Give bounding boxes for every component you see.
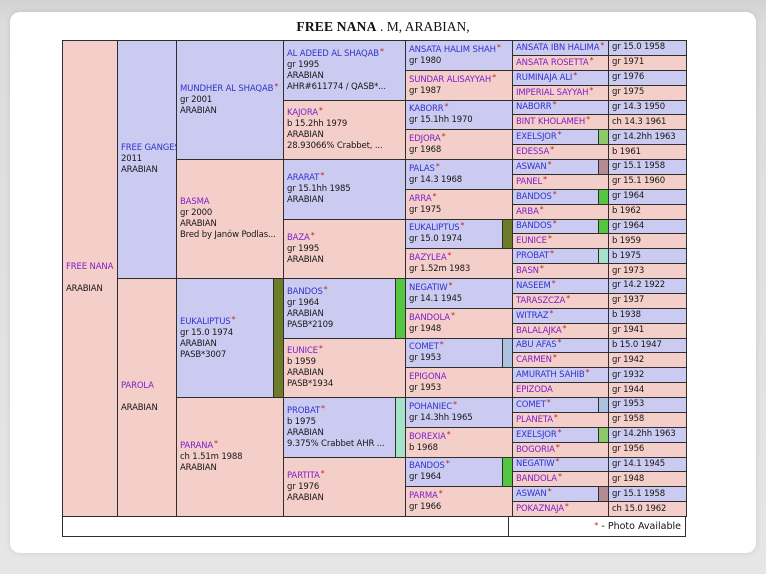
horse-detail: gr 1.52m 1983: [409, 264, 510, 275]
pedigree-table: FREE NANAARABIANFREE GANGES2011ARABIANPA…: [62, 40, 687, 537]
pedigree-cell-bandola[interactable]: BANDOLA*: [512, 471, 608, 486]
duplicate-ancestor-marker: [598, 130, 608, 144]
horse-name-line: BANDOS*: [287, 286, 403, 298]
horse-detail: gr 1964: [409, 472, 510, 483]
photo-star-icon: *: [453, 400, 457, 409]
pedigree-date-cell: b 1959: [608, 233, 686, 248]
horse-name: AL ADEED AL SHAQAB: [287, 49, 379, 59]
horse-detail: ARABIAN: [180, 463, 281, 474]
pedigree-cell-exelsjor[interactable]: EXELSJOR*: [512, 427, 608, 442]
pedigree-cell-carmen[interactable]: CARMEN*: [512, 352, 608, 367]
horse-name-line: ABU AFAS*: [516, 339, 606, 351]
horse-detail: gr 14.3 1968: [409, 175, 510, 186]
horse-name-line: EPIZODA: [516, 385, 606, 396]
horse-name-line: PARMA*: [409, 490, 510, 502]
horse-detail: b 1975: [287, 417, 403, 428]
duplicate-ancestor-marker: [598, 190, 608, 204]
horse-name-line: IMPERIAL SAYYAH*: [516, 87, 606, 99]
horse-detail: [66, 273, 115, 284]
photo-star-icon: *: [492, 73, 496, 82]
photo-star-icon: *: [558, 338, 562, 347]
photo-star-icon: *: [448, 251, 452, 260]
horse-name: ASWAN: [516, 162, 547, 172]
pedigree-cell-imperial-sayyah[interactable]: IMPERIAL SAYYAH*: [512, 85, 608, 100]
pedigree-cell-sundar-alisayyah[interactable]: SUNDAR ALISAYYAH*gr 1987: [405, 70, 512, 100]
horse-detail: PASB*2109: [287, 320, 403, 331]
horse-name-line: ASWAN*: [516, 161, 606, 173]
horse-date: gr 1971: [612, 57, 684, 68]
pedigree-cell-ruminaja-ali[interactable]: RUMINAJA ALI*: [512, 70, 608, 85]
horse-name-line: BALALAJKA*: [516, 325, 606, 337]
horse-date: b 1975: [612, 251, 684, 262]
photo-star-icon: *: [319, 344, 323, 353]
pedigree-cell-ararat[interactable]: ARARAT*gr 15.1hh 1985ARABIAN: [283, 159, 405, 219]
pedigree-date-cell: gr 1976: [608, 70, 686, 85]
horse-name-line: ARBA*: [516, 206, 606, 218]
horse-date: gr 1975: [612, 87, 684, 98]
pedigree-cell-amurath-sahib[interactable]: AMURATH SAHIB*: [512, 367, 608, 382]
pedigree-cell-basma[interactable]: BASMAgr 2000ARABIANBred by Janów Podlas.…: [176, 159, 283, 278]
horse-date: gr 15.1 1958: [612, 489, 684, 500]
horse-name-line: ASWAN*: [516, 488, 606, 500]
horse-name-line: BOGORIA*: [516, 444, 606, 456]
horse-date: gr 1953: [612, 399, 684, 410]
horse-detail: ARABIAN: [66, 284, 115, 295]
horse-name: BASN: [516, 266, 539, 276]
pedigree-date-cell: gr 14.2 1922: [608, 278, 686, 293]
pedigree-cell-parola[interactable]: PAROLAARABIAN: [117, 278, 176, 516]
photo-star-icon: *: [449, 281, 453, 290]
horse-name-line: ARARAT*: [287, 172, 403, 184]
pedigree-footer: * - Photo Available: [62, 517, 686, 537]
pedigree-cell-mundher-al-shaqab[interactable]: MUNDHER AL SHAQAB*gr 2001ARABIAN: [176, 40, 283, 159]
pedigree-cell-taraszcza[interactable]: TARASZCZA*: [512, 293, 608, 308]
horse-detail: gr 2000: [180, 208, 281, 219]
horse-date: gr 1973: [612, 266, 684, 277]
pedigree-cell-comet[interactable]: COMET*gr 1953: [405, 338, 512, 368]
horse-detail: Bred by Janów Podlas...: [180, 230, 281, 241]
horse-date: b 1962: [612, 206, 684, 217]
horse-detail: ARABIAN: [180, 106, 281, 117]
horse-name: KABORR: [409, 104, 444, 114]
horse-name-line: BAZA*: [287, 232, 403, 244]
horse-name-line: EXELSJOR*: [516, 429, 606, 441]
pedigree-grid: FREE NANAARABIANFREE GANGES2011ARABIANPA…: [62, 40, 687, 517]
horse-name-line: AMURATH SAHIB*: [516, 369, 606, 381]
photo-star-icon: *: [436, 162, 440, 171]
horse-detail: ARABIAN: [287, 309, 403, 320]
horse-name-line: BAZYLEA*: [409, 252, 510, 264]
photo-star-icon: *: [563, 324, 567, 333]
horse-name-line: EXELSJOR*: [516, 131, 606, 143]
horse-name: EPIZODA: [516, 385, 553, 395]
horse-date: b 1938: [612, 310, 684, 321]
pedigree-cell-probat[interactable]: PROBAT*b 1975ARABIAN9.375% Crabbet AHR .…: [283, 397, 405, 457]
horse-detail: ARABIAN: [287, 195, 403, 206]
horse-name-line: TARASZCZA*: [516, 295, 606, 307]
horse-name: ANSATA ROSETTA: [516, 58, 589, 68]
horse-name: PAROLA: [121, 381, 154, 391]
photo-star-icon: *: [553, 353, 557, 362]
duplicate-ancestor-marker: [598, 220, 608, 234]
horse-name: PANEL: [516, 177, 542, 187]
horse-detail: ARABIAN: [287, 368, 403, 379]
horse-date: gr 14.2hh 1963: [612, 132, 684, 143]
photo-star-icon: *: [311, 231, 315, 240]
horse-name: COMET: [516, 400, 546, 410]
photo-star-icon: *: [547, 398, 551, 407]
horse-date: b 1961: [612, 147, 684, 158]
pedigree-date-cell: gr 15.1 1960: [608, 174, 686, 189]
horse-name: BANDOS: [516, 192, 552, 202]
horse-name-line: ANSATA IBN HALIMA*: [516, 42, 606, 54]
pedigree-cell-bandos[interactable]: BANDOS*: [512, 219, 608, 234]
pedigree-cell-bandos[interactable]: BANDOS*gr 1964ARABIANPASB*2109: [283, 278, 405, 338]
photo-star-icon: *: [543, 175, 547, 184]
pedigree-date-cell: gr 14.2hh 1963: [608, 129, 686, 144]
horse-detail: gr 1966: [409, 502, 510, 513]
photo-star-icon: *: [558, 472, 562, 481]
pedigree-cell-bazylea[interactable]: BAZYLEA*gr 1.52m 1983: [405, 248, 512, 278]
horse-detail: b 1968: [409, 443, 510, 454]
horse-name: FREE GANGES: [121, 143, 176, 153]
horse-name-line: FREE NANA: [66, 262, 115, 273]
horse-detail: gr 15.0 1974: [409, 234, 510, 245]
pedigree-date-cell: b 1975: [608, 248, 686, 263]
photo-star-icon: *: [442, 132, 446, 141]
horse-date: b 1959: [612, 236, 684, 247]
horse-detail: ARABIAN: [121, 165, 174, 176]
horse-name-line: EUKALIPTUS*: [409, 222, 510, 234]
photo-star-icon: *: [553, 219, 557, 228]
horse-date: gr 1944: [612, 385, 684, 396]
horse-name: EUKALIPTUS: [180, 317, 231, 327]
photo-star-icon: *: [232, 315, 236, 324]
duplicate-ancestor-marker: [502, 458, 512, 487]
horse-name: ARRA: [409, 194, 432, 204]
pedigree-cell-bandola[interactable]: BANDOLA*gr 1948: [405, 308, 512, 338]
horse-name: ANSATA HALIM SHAH: [409, 45, 496, 55]
horse-name-line: RUMINAJA ALI*: [516, 72, 606, 84]
pedigree-cell-negatiw[interactable]: NEGATIW*gr 14.1 1945: [405, 278, 512, 308]
photo-star-icon: *: [321, 469, 325, 478]
horse-name: PLANETA: [516, 415, 553, 425]
horse-name: POHANIEC: [409, 402, 452, 412]
photo-star-icon: *: [439, 489, 443, 498]
horse-name: AMURATH SAHIB: [516, 370, 585, 380]
pedigree-cell-baza[interactable]: BAZA*gr 1995ARABIAN: [283, 219, 405, 279]
horse-name: BANDOS: [516, 221, 552, 231]
photo-star-icon: *: [550, 145, 554, 154]
pedigree-cell-eunice[interactable]: EUNICE*: [512, 233, 608, 248]
horse-date: gr 1937: [612, 295, 684, 306]
pedigree-cell-naseem[interactable]: NASEEM*: [512, 278, 608, 293]
pedigree-cell-probat[interactable]: PROBAT*: [512, 248, 608, 263]
horse-date: gr 1976: [612, 72, 684, 83]
horse-name-line: POHANIEC*: [409, 401, 510, 413]
pedigree-date-cell: gr 1971: [608, 55, 686, 70]
horse-name: NABORR: [516, 102, 551, 112]
pedigree-cell-kajora[interactable]: KAJORA*b 15.2hh 1979ARABIAN28.93066% Cra…: [283, 100, 405, 160]
pedigree-cell-borexia[interactable]: BOREXIA*b 1968: [405, 427, 512, 457]
pedigree-cell-free-nana[interactable]: FREE NANAARABIAN: [62, 40, 117, 516]
horse-detail: ARABIAN: [180, 219, 281, 230]
pedigree-cell-bint-kholameh[interactable]: BINT KHOLAMEH*: [512, 114, 608, 129]
horse-name-line: NEGATIW*: [516, 458, 606, 470]
horse-detail: gr 14.1 1945: [409, 294, 510, 305]
horse-name-line: BANDOLA*: [409, 312, 510, 324]
horse-date: ch 15.0 1962: [612, 504, 684, 515]
horse-date: gr 14.3 1950: [612, 102, 684, 113]
horse-detail: b 1959: [287, 357, 403, 368]
horse-name: PARTITA: [287, 471, 320, 481]
horse-name: ABU AFAS: [516, 340, 557, 350]
horse-detail: gr 1995: [287, 244, 403, 255]
horse-date: gr 14.1 1945: [612, 459, 684, 470]
horse-date: gr 15.1 1960: [612, 176, 684, 187]
horse-name-line: KABORR*: [409, 103, 510, 115]
horse-name-line: BASN*: [516, 265, 606, 277]
pedigree-date-cell: gr 1956: [608, 442, 686, 457]
horse-name-line: BANDOS*: [516, 220, 606, 232]
pedigree-cell-edjora[interactable]: EDJORA*gr 1968: [405, 129, 512, 159]
horse-detail: ARABIAN: [287, 493, 403, 504]
horse-name-line: COMET*: [516, 399, 606, 411]
horse-name-line: PARTITA*: [287, 470, 403, 482]
horse-date: gr 1956: [612, 444, 684, 455]
pedigree-cell-edessa[interactable]: EDESSA*: [512, 144, 608, 159]
horse-name: BANDOLA: [409, 313, 450, 323]
horse-detail: gr 15.0 1974: [180, 328, 281, 339]
horse-date: gr 15.0 1958: [612, 42, 684, 53]
pedigree-cell-planeta[interactable]: PLANETA*: [512, 412, 608, 427]
pedigree-cell-pohaniec[interactable]: POHANIEC*gr 14.3hh 1965: [405, 397, 512, 427]
footer-empty-cell: [63, 517, 509, 536]
horse-name: MUNDHER AL SHAQAB: [180, 84, 273, 94]
photo-star-icon: *: [565, 502, 569, 511]
horse-name: SUNDAR ALISAYYAH: [409, 75, 491, 85]
photo-star-icon: *: [552, 100, 556, 109]
photo-star-icon: *: [540, 205, 544, 214]
horse-name: BANDOS: [409, 461, 445, 471]
horse-name-line: ANSATA ROSETTA*: [516, 57, 606, 69]
horse-name: EUNICE: [287, 346, 318, 356]
pedigree-cell-exelsjor[interactable]: EXELSJOR*: [512, 129, 608, 144]
horse-date: gr 1942: [612, 355, 684, 366]
subject-horse-suffix: . M, ARABIAN,: [377, 19, 470, 34]
photo-star-icon: *: [380, 47, 384, 56]
pedigree-cell-epigona[interactable]: EPIGONAgr 1953: [405, 367, 512, 397]
pedigree-cell-eukaliptus[interactable]: EUKALIPTUS*gr 15.0 1974ARABIANPASB*3007: [176, 278, 283, 397]
horse-name: NEGATIW: [516, 459, 555, 469]
horse-detail: ARABIAN: [180, 339, 281, 350]
pedigree-date-cell: gr 1942: [608, 352, 686, 367]
horse-name: ARBA: [516, 207, 539, 217]
pedigree-date-cell: gr 1932: [608, 367, 686, 382]
pedigree-cell-negatiw[interactable]: NEGATIW*: [512, 457, 608, 472]
pedigree-cell-aswan[interactable]: ASWAN*: [512, 159, 608, 174]
horse-detail: gr 1976: [287, 482, 403, 493]
pedigree-date-cell: gr 1958: [608, 412, 686, 427]
pedigree-cell-witraz[interactable]: WITRAZ*: [512, 308, 608, 323]
photo-star-icon: *: [540, 264, 544, 273]
photo-available-label: - Photo Available: [601, 521, 681, 532]
pedigree-cell-naborr[interactable]: NABORR*: [512, 100, 608, 115]
pedigree-cell-bogoria[interactable]: BOGORIA*: [512, 442, 608, 457]
horse-name-line: ANSATA HALIM SHAH*: [409, 44, 510, 56]
pedigree-cell-pokaznaja[interactable]: POKAZNAJA*: [512, 501, 608, 516]
pedigree-cell-panel[interactable]: PANEL*: [512, 174, 608, 189]
horse-date: b 15.0 1947: [612, 340, 684, 351]
horse-name: EDJORA: [409, 134, 441, 144]
pedigree-cell-kaborr[interactable]: KABORR*gr 15.1hh 1970: [405, 100, 512, 130]
pedigree-date-cell: ch 14.3 1961: [608, 114, 686, 129]
pedigree-cell-bandos[interactable]: BANDOS*gr 1964: [405, 457, 512, 487]
pedigree-cell-aswan[interactable]: ASWAN*: [512, 486, 608, 501]
horse-name-line: PLANETA*: [516, 414, 606, 426]
duplicate-ancestor-marker: [502, 339, 512, 368]
horse-date: gr 1958: [612, 414, 684, 425]
pedigree-date-cell: ch 15.0 1962: [608, 501, 686, 516]
horse-name: NEGATIW: [409, 283, 448, 293]
photo-star-icon: *: [586, 368, 590, 377]
horse-detail: gr 1995: [287, 60, 403, 71]
horse-name-line: BANDOLA*: [516, 473, 606, 485]
pedigree-date-cell: b 1938: [608, 308, 686, 323]
horse-name-line: BASMA: [180, 197, 281, 208]
photo-star-icon: *: [445, 102, 449, 111]
horse-name: EUNICE: [516, 236, 547, 246]
photo-star-icon: *: [548, 487, 552, 496]
horse-name-line: KAJORA*: [287, 107, 403, 119]
pedigree-cell-parma[interactable]: PARMA*gr 1966: [405, 486, 512, 516]
pedigree-cell-comet[interactable]: COMET*: [512, 397, 608, 412]
photo-star-icon: *: [440, 340, 444, 349]
horse-name-line: PROBAT*: [287, 405, 403, 417]
duplicate-ancestor-marker: [395, 279, 405, 338]
duplicate-ancestor-marker: [395, 398, 405, 457]
horse-name: BAZYLEA: [409, 253, 447, 263]
horse-name: BASMA: [180, 197, 209, 207]
horse-name-line: SUNDAR ALISAYYAH*: [409, 74, 510, 86]
horse-detail: AHR#611774 / QASB*...: [287, 82, 403, 93]
horse-date: gr 14.2hh 1963: [612, 429, 684, 440]
horse-detail: 2011: [121, 154, 174, 165]
horse-detail: b 15.2hh 1979: [287, 119, 403, 130]
horse-name-line: EDJORA*: [409, 133, 510, 145]
pedigree-cell-arra[interactable]: ARRA*gr 1975: [405, 189, 512, 219]
horse-name: PARANA: [180, 441, 213, 451]
pedigree-cell-basn[interactable]: BASN*: [512, 263, 608, 278]
photo-star-icon: *: [558, 130, 562, 139]
pedigree-cell-eunice[interactable]: EUNICE*b 1959ARABIANPASB*1934: [283, 338, 405, 398]
horse-detail: ARABIAN: [121, 403, 174, 414]
horse-name-line: CARMEN*: [516, 354, 606, 366]
pedigree-date-cell: gr 15.0 1958: [608, 40, 686, 55]
horse-detail: PASB*1934: [287, 379, 403, 390]
horse-name: POKAZNAJA: [516, 504, 564, 514]
photo-star-icon: *: [447, 430, 451, 439]
pedigree-cell-bandos[interactable]: BANDOS*: [512, 189, 608, 204]
duplicate-ancestor-marker: [598, 160, 608, 174]
pedigree-cell-ansata-halim-shah[interactable]: ANSATA HALIM SHAH*gr 1980: [405, 40, 512, 70]
horse-name-line: PAROLA: [121, 381, 174, 392]
pedigree-cell-al-adeed-al-shaqab[interactable]: AL ADEED AL SHAQAB*gr 1995ARABIANAHR#611…: [283, 40, 405, 100]
horse-name-line: BOREXIA*: [409, 431, 510, 443]
photo-available-legend: * - Photo Available: [509, 517, 685, 536]
photo-star-icon: *: [554, 413, 558, 422]
photo-star-icon: *: [590, 56, 594, 65]
pedigree-date-cell: gr 1937: [608, 293, 686, 308]
horse-name: COMET: [409, 342, 439, 352]
pedigree-cell-eukaliptus[interactable]: EUKALIPTUS*gr 15.0 1974: [405, 219, 512, 249]
horse-date: gr 15.1 1958: [612, 161, 684, 172]
horse-name: PROBAT: [287, 406, 320, 416]
photo-star-icon: *: [556, 457, 560, 466]
photo-star-icon: *: [589, 86, 593, 95]
horse-name: CARMEN: [516, 355, 552, 365]
horse-detail: ARABIAN: [287, 255, 403, 266]
photo-star-icon: *: [556, 443, 560, 452]
pedigree-date-cell: gr 1953: [608, 397, 686, 412]
photo-star-icon: *: [586, 115, 590, 124]
duplicate-ancestor-marker: [273, 279, 283, 397]
horse-name: BALALAJKA: [516, 326, 562, 336]
pedigree-cell-partita[interactable]: PARTITA*gr 1976ARABIAN: [283, 457, 405, 517]
pedigree-cell-balalajka[interactable]: BALALAJKA*: [512, 323, 608, 338]
horse-detail: gr 1968: [409, 145, 510, 156]
horse-name: FREE NANA: [66, 262, 113, 272]
horse-detail: ARABIAN: [287, 130, 403, 141]
horse-detail: gr 1980: [409, 56, 510, 67]
horse-name-line: ARRA*: [409, 193, 510, 205]
pedigree-cell-palas[interactable]: PALAS*gr 14.3 1968: [405, 159, 512, 189]
horse-detail: [121, 392, 174, 403]
pedigree-date-cell: gr 15.1 1958: [608, 159, 686, 174]
pedigree-cell-free-ganges[interactable]: FREE GANGES2011ARABIAN: [117, 40, 176, 278]
pedigree-cell-abu-afas[interactable]: ABU AFAS*: [512, 338, 608, 353]
horse-name-line: EUNICE*: [287, 345, 403, 357]
photo-star-icon: *: [566, 294, 570, 303]
horse-name-line: EUNICE*: [516, 235, 606, 247]
horse-name-line: FREE GANGES: [121, 143, 174, 154]
pedigree-cell-ansata-rosetta[interactable]: ANSATA ROSETTA*: [512, 55, 608, 70]
horse-detail: gr 1953: [409, 353, 510, 364]
photo-star-icon: *: [594, 521, 598, 530]
horse-detail: gr 1953: [409, 383, 510, 394]
pedigree-date-cell: b 15.0 1947: [608, 338, 686, 353]
horse-name: WITRAZ: [516, 311, 548, 321]
pedigree-cell-ansata-ibn-halima[interactable]: ANSATA IBN HALIMA*: [512, 40, 608, 55]
pedigree-date-cell: gr 1973: [608, 263, 686, 278]
pedigree-date-cell: gr 1948: [608, 471, 686, 486]
horse-name-line: BANDOS*: [516, 191, 606, 203]
pedigree-date-cell: gr 15.1 1958: [608, 486, 686, 501]
pedigree-cell-parana[interactable]: PARANA*ch 1.51m 1988ARABIAN: [176, 397, 283, 516]
duplicate-ancestor-marker: [598, 398, 608, 412]
duplicate-ancestor-marker: [598, 428, 608, 442]
horse-detail: gr 1948: [409, 324, 510, 335]
pedigree-cell-epizoda[interactable]: EPIZODA: [512, 382, 608, 397]
horse-detail: gr 1975: [409, 205, 510, 216]
pedigree-cell-arba[interactable]: ARBA*: [512, 204, 608, 219]
horse-name: ASWAN: [516, 489, 547, 499]
photo-star-icon: *: [319, 106, 323, 115]
horse-name: BINT KHOLAMEH: [516, 117, 585, 127]
horse-name-line: EDESSA*: [516, 146, 606, 158]
duplicate-ancestor-marker: [502, 220, 512, 249]
horse-name-line: NABORR*: [516, 101, 606, 113]
